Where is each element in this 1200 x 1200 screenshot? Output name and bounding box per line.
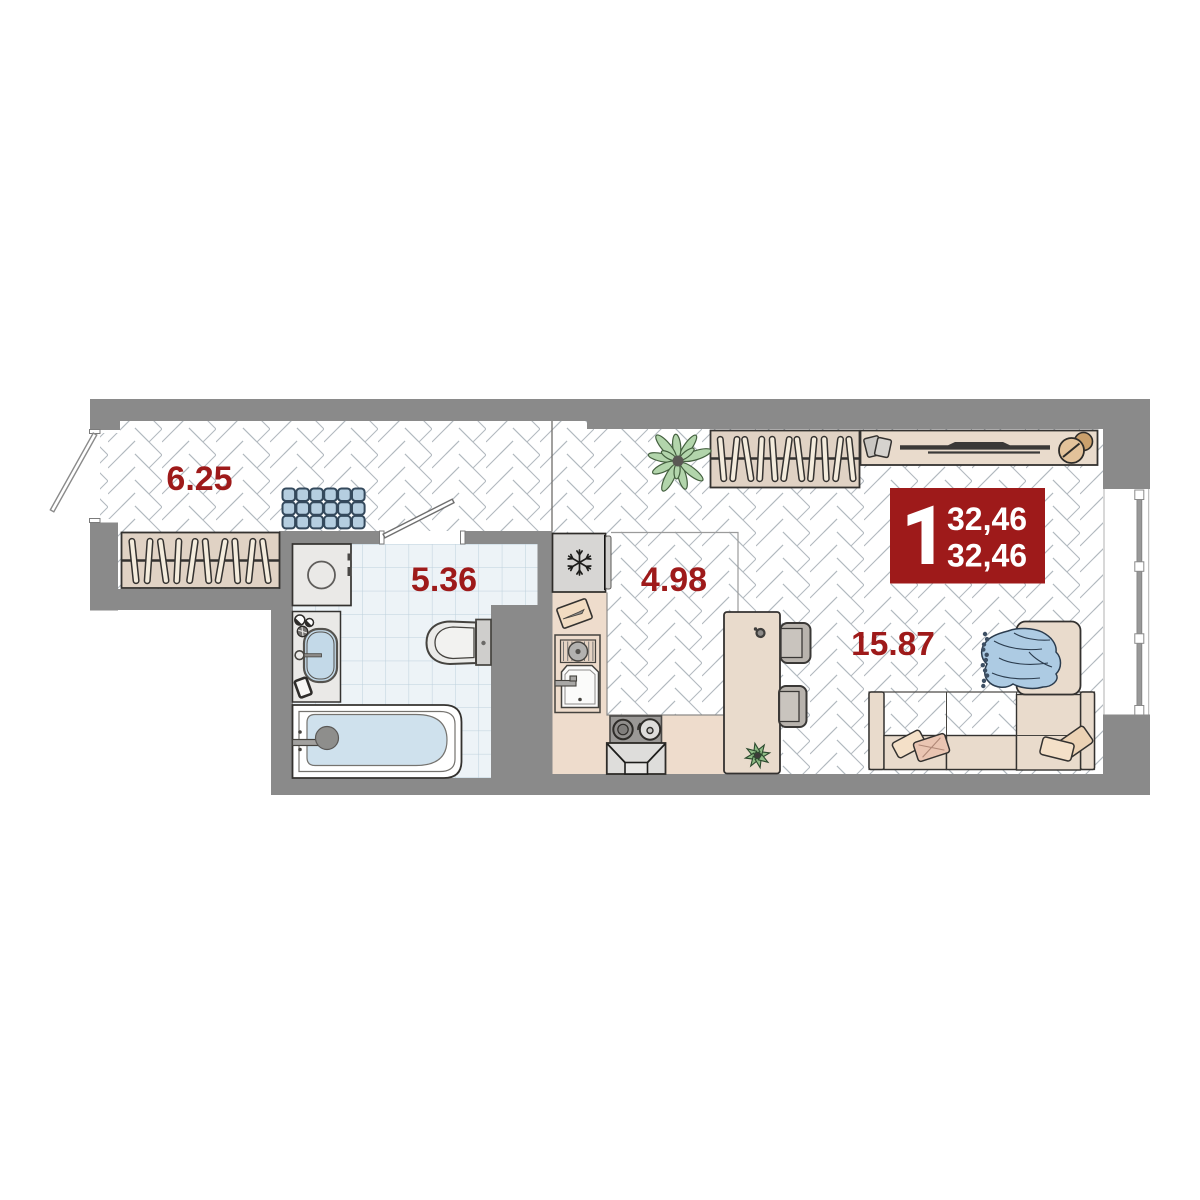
- svg-text:32,46: 32,46: [947, 538, 1027, 574]
- svg-text:4.98: 4.98: [641, 561, 707, 599]
- svg-text:5.36: 5.36: [411, 561, 477, 599]
- svg-text:32,46: 32,46: [947, 501, 1027, 537]
- svg-text:15.87: 15.87: [851, 626, 935, 663]
- svg-text:6.25: 6.25: [166, 460, 232, 498]
